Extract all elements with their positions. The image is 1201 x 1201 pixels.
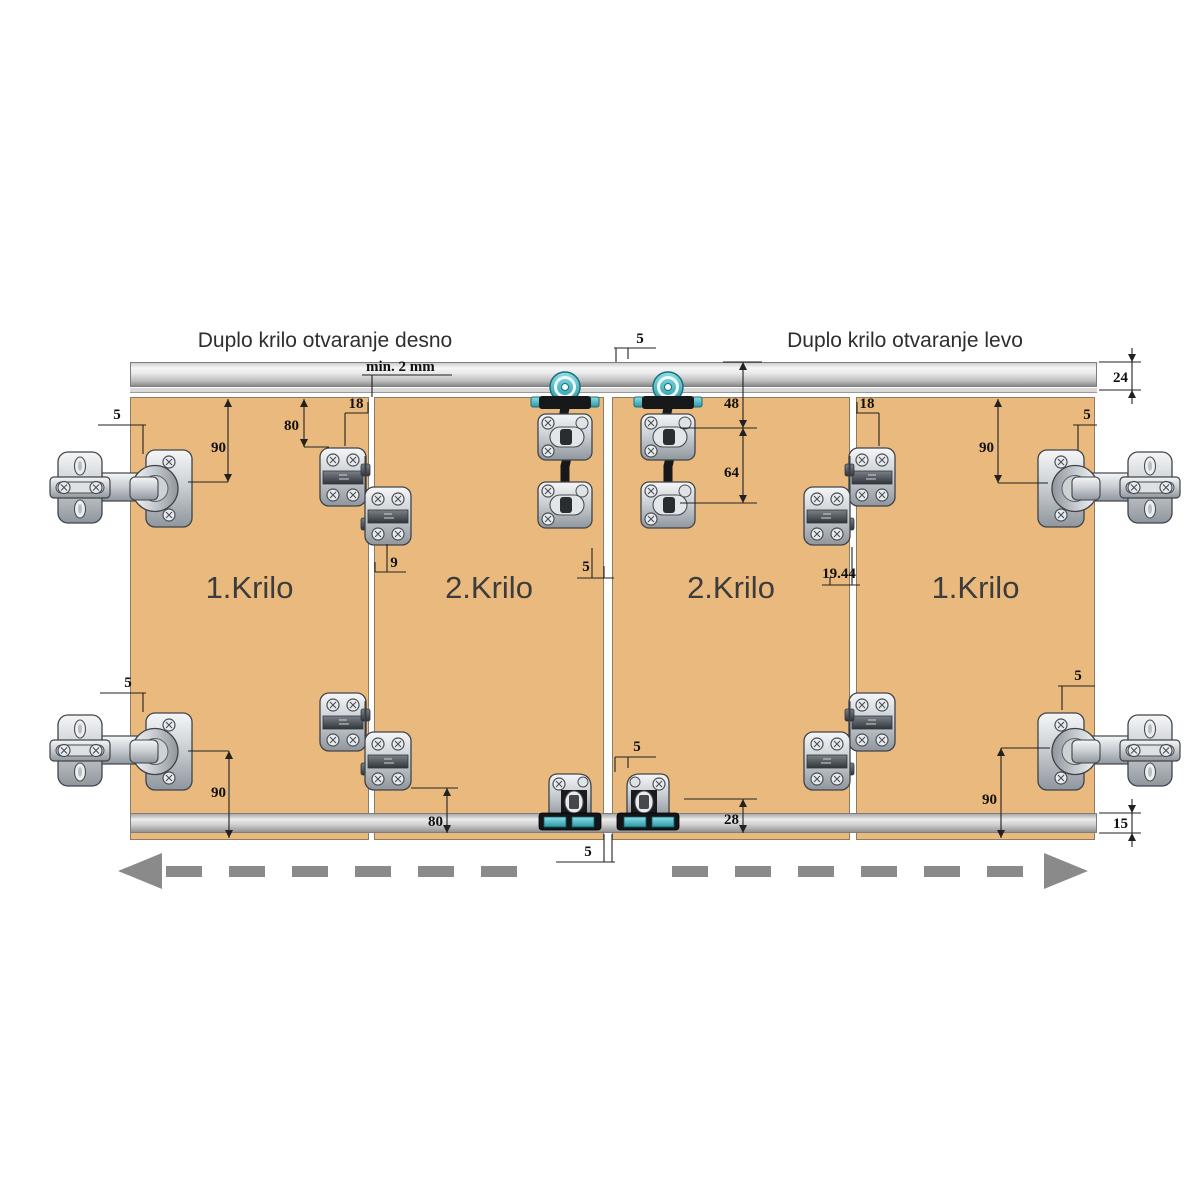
dim-center-top-gap: 5 bbox=[636, 331, 644, 347]
dim-bottom-center-gap: 5 bbox=[584, 844, 592, 860]
dim-rail-bottom-height: 15 bbox=[1113, 816, 1128, 832]
dim-bottom-left-hinge: 90 bbox=[211, 785, 226, 801]
dim-bottom-right-edge: 5 bbox=[1074, 668, 1082, 684]
dim-top-left-hinge: 90 bbox=[211, 440, 226, 456]
dimension-lines bbox=[98, 348, 1141, 862]
fold-hinge-icon-right-top bbox=[804, 448, 895, 545]
cup-hinge-icon-right-top bbox=[1038, 450, 1180, 527]
dim-roller-upper: 48 bbox=[724, 396, 739, 412]
dim-center-plate-gap: 5 bbox=[582, 559, 590, 575]
bottom-guide-icon-right bbox=[617, 774, 679, 830]
dim-bottom-center-gap-top: 5 bbox=[633, 739, 641, 755]
dim-roller-lower: 64 bbox=[724, 465, 740, 481]
cup-hinge-icon-left-top bbox=[50, 450, 192, 527]
dim-top-left-mid: 80 bbox=[284, 418, 299, 434]
dim-bottom-left-edge: 5 bbox=[124, 675, 132, 691]
dim-top-right-inset: 18 bbox=[860, 396, 875, 412]
dim-min-gap: min. 2 mm bbox=[366, 359, 435, 375]
hardware-and-dimensions-overlay: 5 90 80 18 min. 2 mm 9 5 48 64 5 19.44 1… bbox=[0, 0, 1201, 1201]
fold-hinge-icon-right-bottom bbox=[804, 693, 895, 790]
fold-hinge-icon-left-top bbox=[320, 448, 411, 545]
hanger-roller-icon-right bbox=[634, 372, 702, 528]
dim-bottom-left-mid: 80 bbox=[428, 814, 443, 830]
bottom-guide-icon-left bbox=[539, 774, 601, 830]
dim-top-right-edge: 5 bbox=[1083, 407, 1091, 423]
dim-mid-right-gap: 19.44 bbox=[822, 566, 856, 582]
dim-bottom-right-hinge: 90 bbox=[982, 792, 997, 808]
hanger-roller-icon-left bbox=[531, 372, 599, 528]
dim-rail-top-height: 24 bbox=[1113, 370, 1129, 386]
fold-hinge-icon-left-bottom bbox=[320, 693, 411, 790]
dim-mid-left-gap: 9 bbox=[390, 555, 398, 571]
dim-top-left-edge: 5 bbox=[113, 407, 121, 423]
dim-top-right-hinge: 90 bbox=[979, 440, 994, 456]
folding-door-diagram: Duplo krilo otvaranje desno Duplo krilo … bbox=[0, 0, 1201, 1201]
dim-top-left-inset: 18 bbox=[349, 396, 364, 412]
cup-hinge-icon-left-bottom bbox=[50, 713, 192, 790]
cup-hinge-icon-right-bottom bbox=[1038, 713, 1180, 790]
dim-bottom-center-guide: 28 bbox=[724, 812, 739, 828]
